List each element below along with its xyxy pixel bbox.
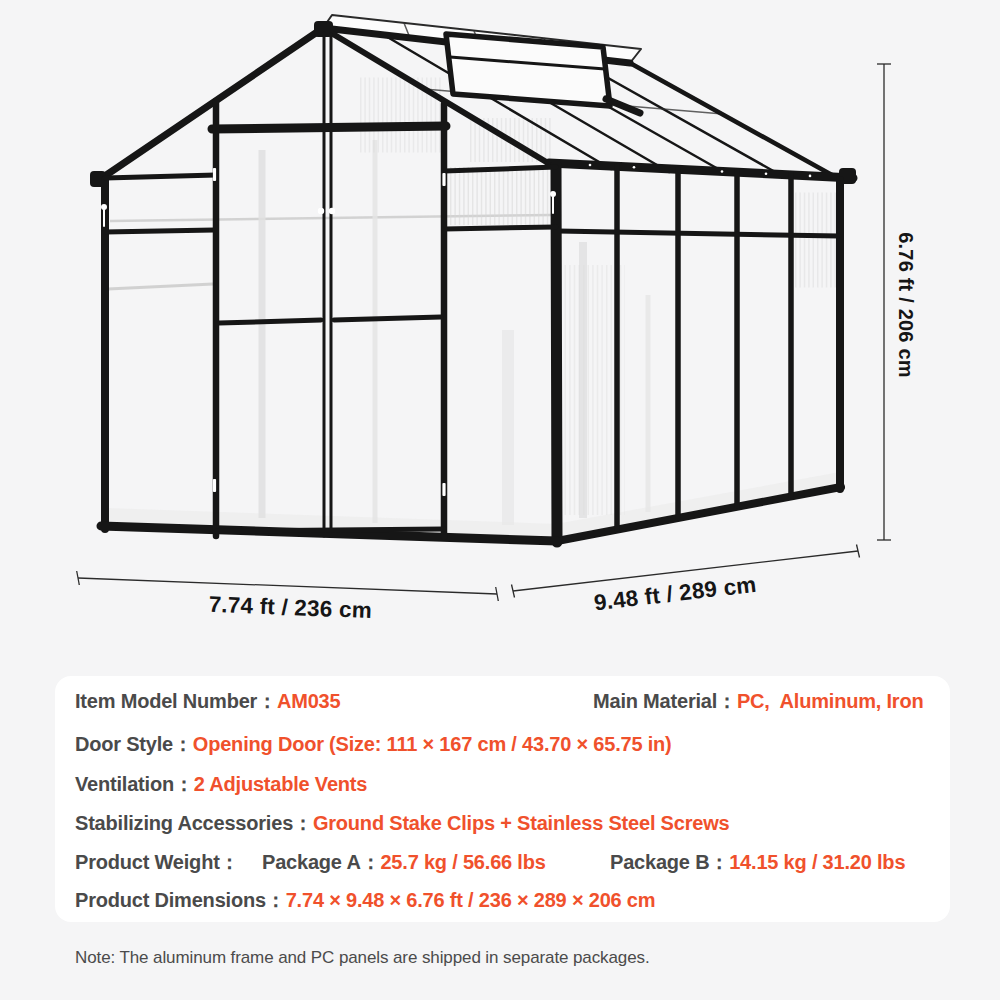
spec-column: Ventilation：2 Adjustable Vents [75,771,367,797]
door-header [212,126,446,129]
spec-value: 14.15 kg / 31.20 lbs [729,851,905,873]
right-wall-base [557,487,841,541]
spec-label: Ventilation： [75,773,194,795]
spec-column: Stabilizing Accessories：Ground Stake Cli… [75,810,729,836]
spec-value: 25.7 kg / 56.66 lbs [380,851,545,873]
front-left-roof-edge [96,28,323,182]
dimension-height [877,64,891,540]
spec-label: Item Model Number： [75,690,277,712]
doors [212,33,446,537]
spec-column: Door Style：Opening Door (Size: 111 × 167… [75,731,672,757]
width-dimension-label: 7.74 ft / 236 cm [208,592,372,623]
spec-value: 2 Adjustable Vents [194,773,368,795]
spec-row: Door Style：Opening Door (Size: 111 × 167… [75,731,930,757]
spec-value: PC, Aluminum, Iron [737,690,924,712]
height-dimension-label: 6.76 ft / 206 cm [895,232,917,378]
spec-value: 7.74 × 9.48 × 6.76 ft / 236 × 289 × 206 … [286,889,656,911]
door-handles [318,208,335,214]
spec-row: Product Weight：Package A：25.7 kg / 56.66… [75,849,930,875]
spec-column: Item Model Number：AM035 [75,688,340,714]
spec-row: Stabilizing Accessories：Ground Stake Cli… [75,810,930,836]
spec-column: Package A：25.7 kg / 56.66 lbs [262,849,546,875]
spec-label: Package A： [262,851,380,873]
spec-row: Product Dimensions：7.74 × 9.48 × 6.76 ft… [75,887,930,913]
shipping-note: Note: The aluminum frame and PC panels a… [75,948,650,968]
spec-label: Main Material： [593,690,737,712]
greenhouse-spec-infographic: 6.76 ft / 206 cm 7.74 ft / 236 cm 9.48 f… [0,0,1000,1000]
spec-row: Item Model Number：AM035Main Material：PC,… [75,688,930,714]
spec-column: Package B：14.15 kg / 31.20 lbs [610,849,905,875]
spec-label: Product Dimensions： [75,889,286,911]
front-right-post [556,165,557,542]
greenhouse-illustration: 6.76 ft / 206 cm 7.74 ft / 236 cm 9.48 f… [0,0,1000,665]
spec-column: Main Material：PC, Aluminum, Iron [593,688,923,714]
spec-column: Product Dimensions：7.74 × 9.48 × 6.76 ft… [75,887,655,913]
spec-value: AM035 [277,690,340,712]
spec-row: Ventilation：2 Adjustable Vents [75,771,930,797]
spec-label: Package B： [610,851,729,873]
back-roof-edge [630,63,841,180]
spec-label: Door Style： [75,733,193,755]
spec-value: Ground Stake Clips + Stainless Steel Scr… [313,812,730,834]
spec-column: Product Weight： [75,849,239,875]
spec-label: Product Weight： [75,851,239,873]
spec-value: Opening Door (Size: 111 × 167 cm / 43.70… [193,733,672,755]
spec-panel: Item Model Number：AM035Main Material：PC,… [55,676,950,922]
gutter-beam [549,163,853,178]
right-wall-rail [558,231,839,236]
spec-label: Stabilizing Accessories： [75,812,313,834]
